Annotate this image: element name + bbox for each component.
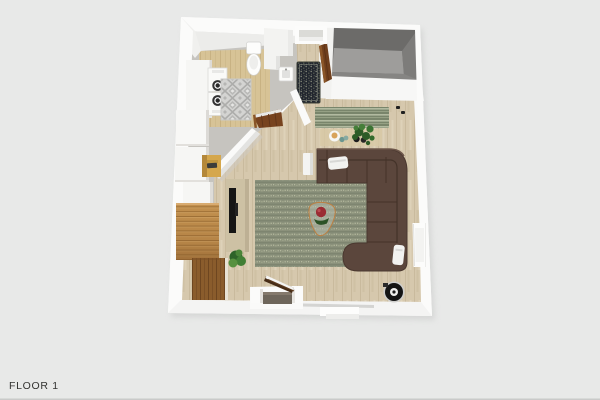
- svg-text:FLOOR 1: FLOOR 1: [9, 380, 59, 392]
